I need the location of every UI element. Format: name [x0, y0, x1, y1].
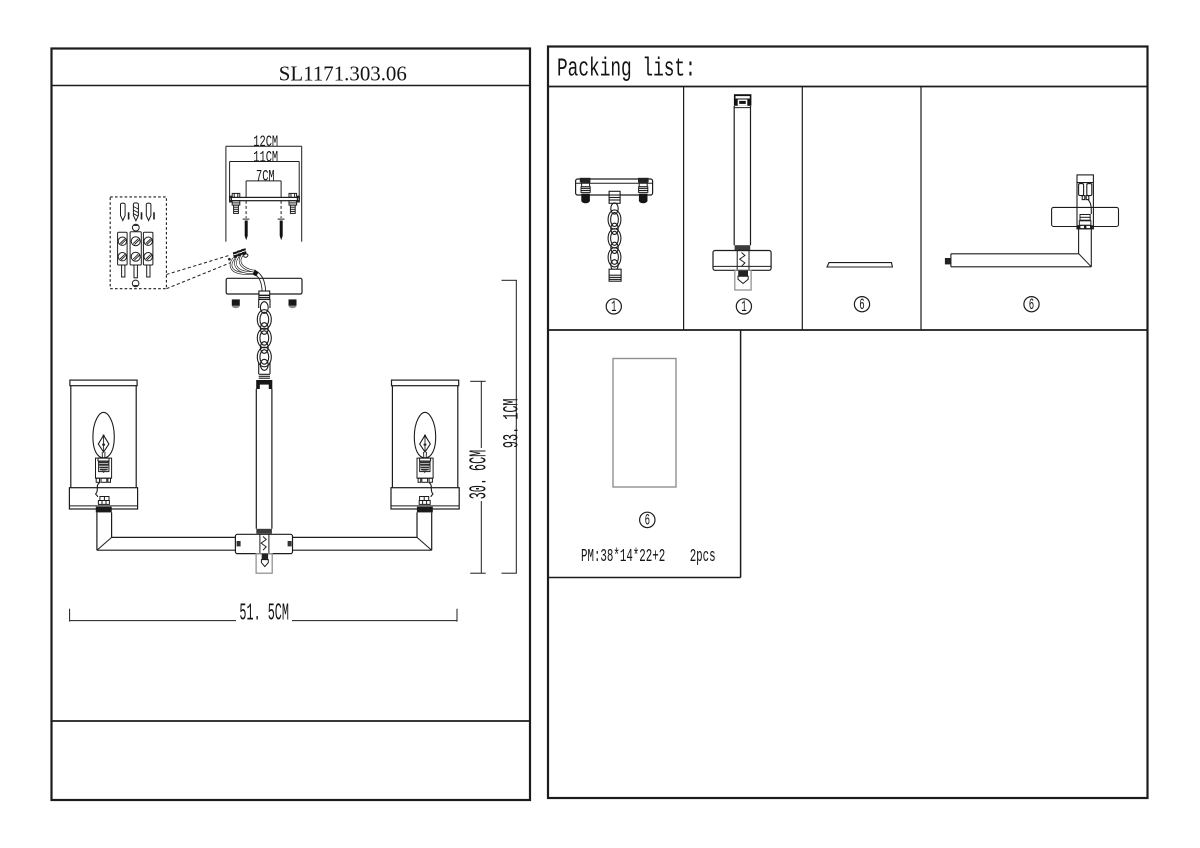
svg-text:93. 1CM: 93. 1CM [500, 399, 525, 449]
svg-text:7CM: 7CM [256, 169, 275, 187]
svg-text:1: 1 [611, 299, 616, 316]
svg-text:30. 6CM: 30. 6CM [465, 450, 493, 500]
svg-text:6: 6 [645, 512, 650, 529]
svg-text:11CM: 11CM [253, 149, 278, 167]
svg-text:51. 5CM: 51. 5CM [239, 599, 289, 627]
svg-text:6: 6 [1029, 297, 1034, 314]
svg-text:6: 6 [859, 297, 864, 314]
svg-text:PM:38*14*22+2: PM:38*14*22+2 [581, 545, 665, 567]
svg-text:1: 1 [741, 299, 746, 316]
svg-text:SL1171.303.06: SL1171.303.06 [279, 61, 407, 85]
svg-text:Packing list:: Packing list: [557, 55, 696, 84]
svg-text:2pcs: 2pcs [690, 545, 716, 567]
